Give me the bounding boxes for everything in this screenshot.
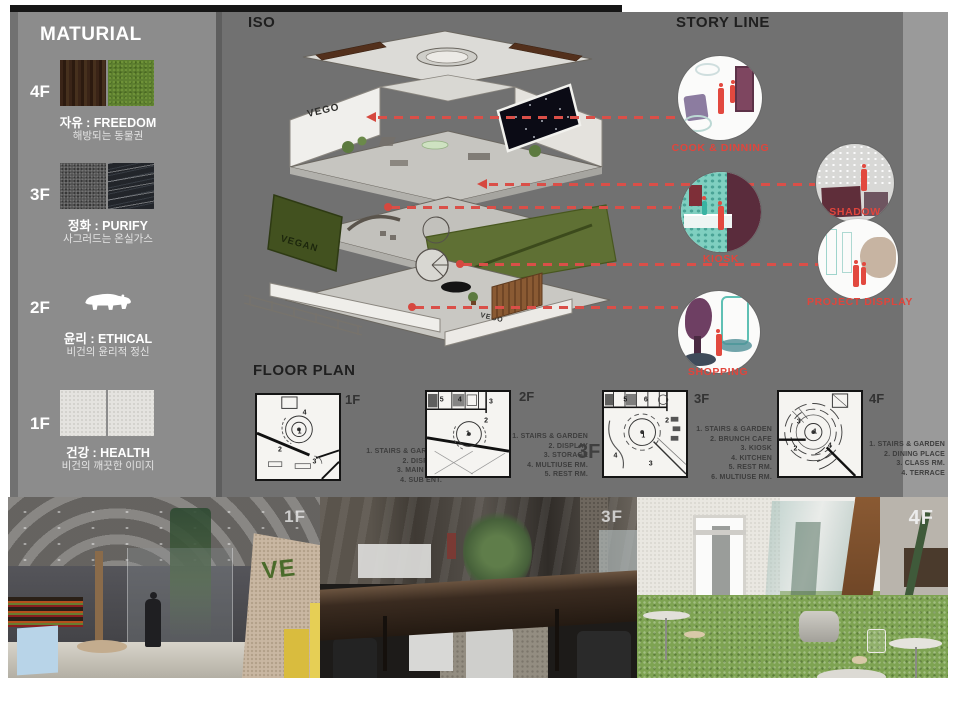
render-3f-cafe: 3F	[320, 497, 637, 678]
vignette-label-cook: COOK & DINNING	[648, 142, 793, 154]
floor-tag-3f: 3F	[30, 185, 50, 205]
room-number: 1	[298, 428, 302, 435]
cafe-table	[817, 669, 885, 678]
plan-tag-3f: 3F	[694, 391, 709, 406]
grass-lawn	[637, 595, 948, 678]
floorplan-section-tag: 3F	[577, 441, 600, 464]
floor-subtitle-3f: 사그러드는 온실가스	[23, 231, 193, 246]
plan-tag-1f: 1F	[345, 392, 360, 407]
vignette-label-shadow: SHADOW	[810, 206, 900, 218]
plan-tag-4f: 4F	[869, 391, 884, 406]
arrow-icon	[366, 112, 376, 122]
material-swatches-4f	[60, 60, 154, 106]
connector-shopping	[415, 306, 678, 309]
table-leg	[383, 616, 387, 670]
yellow-column	[310, 603, 320, 678]
room-number: 2	[665, 417, 669, 424]
storyline-title: STORY LINE	[676, 14, 770, 31]
room-number: 4	[303, 410, 307, 417]
door-interior	[712, 526, 731, 606]
window-glow	[599, 530, 637, 577]
iso-exploded-axon: VEGO V	[230, 25, 650, 365]
white-chair	[466, 624, 514, 678]
floor-tag-2f: 2F	[30, 298, 50, 318]
room-number: 4	[458, 397, 462, 404]
sidebar-divider	[216, 12, 222, 497]
vignette-shopping	[678, 291, 760, 373]
wood-pillar	[95, 551, 103, 642]
dark-chair	[577, 631, 631, 678]
ve-sign: VE	[261, 555, 298, 586]
wood-swatch	[60, 60, 106, 106]
vignette-project-display	[818, 219, 898, 299]
glass-reflection	[790, 522, 820, 602]
vignette-label-shopping: SHOPPING	[668, 366, 768, 378]
floor-tag-4f: 4F	[30, 82, 50, 102]
room-number: 2	[793, 446, 797, 453]
gravel-swatch	[60, 163, 106, 209]
room-number: 2	[484, 417, 488, 424]
room-number: 5	[623, 396, 627, 403]
render-tag-1f: 1F	[284, 507, 306, 527]
room-number: 1	[813, 429, 817, 436]
vignette-kiosk	[681, 172, 761, 252]
grass-swatch	[108, 60, 154, 106]
connector-dot	[384, 203, 392, 211]
connector-dot	[408, 303, 416, 311]
white-screen	[358, 544, 431, 578]
floor-subtitle-1f: 비건의 깨끗한 이미지	[23, 458, 193, 473]
stone-planter	[77, 640, 127, 653]
render-4f-terrace: 4F	[637, 497, 948, 678]
right-light-strip	[903, 12, 948, 497]
material-sidebar: MATURIAL 4F 자유 : FREEDOM 해방되는 동물권 3F 정화 …	[18, 12, 216, 497]
chair-seat	[852, 656, 868, 663]
plan-legend-3f: 1. STAIRS & GARDEN 2. BRUNCH CAFE 3. KIO…	[660, 425, 772, 482]
plan-tag-2f: 2F	[519, 389, 534, 404]
room-number: 4	[828, 442, 832, 449]
person-silhouette	[145, 599, 161, 647]
plan-legend-4f: 1. STAIRS & GARDEN 2. DINING PLACE 3. CL…	[833, 440, 945, 478]
concrete-stool	[799, 611, 839, 642]
room-number: 3	[489, 399, 493, 406]
plan-legend-2f: 1. STAIRS & GARDEN 2. DISPLAY 3. STORAGE…	[476, 432, 588, 480]
material-swatches-3f	[60, 163, 154, 209]
red-accent	[447, 533, 457, 558]
yellow-counter	[284, 629, 309, 678]
connector-cook	[378, 116, 678, 119]
floor-tag-1f: 1F	[30, 414, 50, 434]
table-leg	[915, 647, 917, 678]
produce-shelves	[8, 597, 83, 628]
room-number: 6	[644, 396, 648, 403]
presentation-board: MATURIAL 4F 자유 : FREEDOM 해방되는 동물권 3F 정화 …	[0, 0, 960, 720]
room-number: 3	[312, 459, 316, 466]
glass-partition	[127, 548, 233, 649]
plaster-swatch	[60, 390, 106, 436]
transom-bar	[693, 530, 746, 535]
blue-crate	[17, 626, 58, 676]
vignette-label-kiosk: KIOSK	[676, 253, 766, 265]
rain-swatch	[108, 163, 154, 209]
room-number: 2	[278, 447, 282, 454]
plaster-swatch	[108, 390, 154, 436]
room-number: 4	[614, 452, 618, 459]
room-number: 1	[466, 431, 470, 438]
connector-kiosk	[391, 206, 680, 209]
room-number: 1	[641, 432, 645, 439]
table-leg	[665, 618, 667, 660]
room-number: 3	[797, 419, 801, 426]
dark-chair	[333, 638, 377, 678]
room-number: 3	[649, 461, 653, 468]
top-black-bar	[10, 5, 622, 12]
render-tag-3f: 3F	[601, 507, 623, 527]
polar-bear-icon	[80, 287, 136, 317]
material-swatches-1f	[60, 390, 154, 436]
render-1f-lobby: VE 1F	[8, 497, 320, 678]
vignette-cook-dinning	[678, 56, 762, 140]
table-leg	[555, 609, 559, 671]
render-tag-4f: 4F	[909, 507, 934, 530]
floor-subtitle-4f: 해방되는 동물권	[23, 128, 193, 143]
connector-shadow	[489, 183, 815, 186]
stone-kiosk: VE	[242, 533, 320, 678]
floor-subtitle-2f: 비건의 윤리적 정신	[23, 344, 193, 359]
arrow-icon	[477, 179, 487, 189]
floorplan-1f: 1 2 3 4	[255, 393, 341, 481]
vignette-label-project: PROJECT DISPLAY	[790, 296, 930, 308]
connector-dot	[456, 260, 464, 268]
sidebar-title: MATURIAL	[40, 24, 142, 46]
wire-chair	[867, 629, 886, 653]
room-number: 5	[440, 397, 444, 404]
